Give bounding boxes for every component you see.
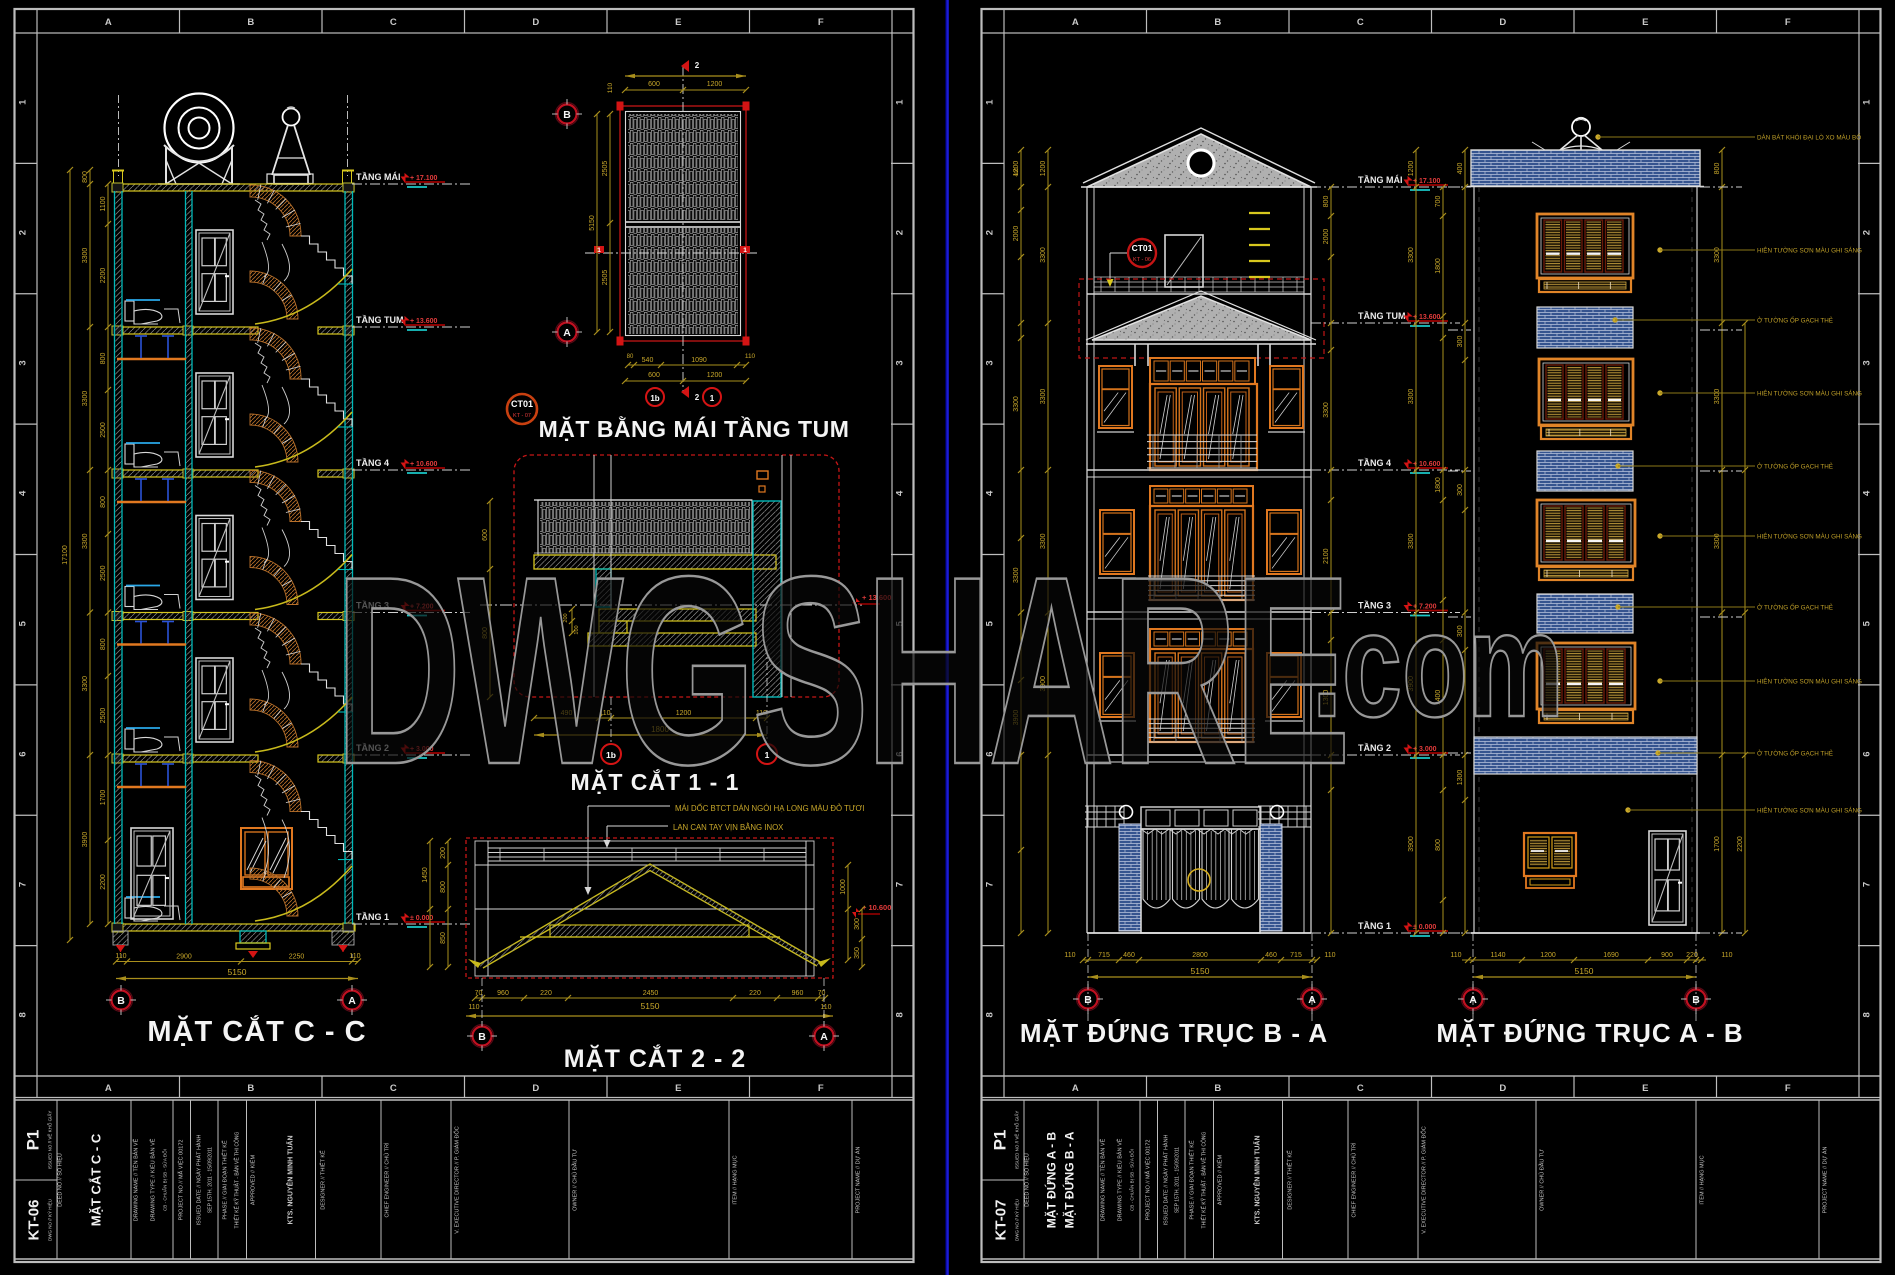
svg-text:PHASE // GIAI ĐOẠN THIẾT KẾ: PHASE // GIAI ĐOẠN THIẾT KẾ — [1189, 1140, 1196, 1220]
svg-text:5150: 5150 — [589, 215, 596, 231]
svg-text:3300: 3300 — [1323, 402, 1330, 418]
svg-text:+ 10.600: + 10.600 — [1413, 461, 1441, 468]
svg-text:F: F — [818, 1083, 824, 1094]
svg-text:A: A — [348, 995, 356, 1007]
svg-text:2: 2 — [695, 393, 700, 402]
svg-text:960: 960 — [792, 990, 804, 997]
svg-text:KT - 07: KT - 07 — [513, 413, 531, 419]
svg-text:DESIGNER // THIẾT KẾ: DESIGNER // THIẾT KẾ — [320, 1150, 327, 1210]
svg-text:B: B — [1214, 1083, 1221, 1094]
svg-text:TẦNG 1: TẦNG 1 — [1358, 921, 1391, 931]
svg-text:3900: 3900 — [1408, 836, 1415, 852]
svg-text:B: B — [563, 109, 571, 121]
svg-text:.com: .com — [1312, 581, 1564, 749]
svg-text:P1: P1 — [991, 1130, 1010, 1151]
svg-text:HIÊN TƯỜNG SƠN MÀU GHI SÁNG: HIÊN TƯỜNG SƠN MÀU GHI SÁNG — [1757, 388, 1862, 397]
svg-text:TẦNG TUM: TẦNG TUM — [1358, 311, 1406, 321]
svg-text:E: E — [675, 17, 681, 28]
svg-text:17100: 17100 — [62, 545, 69, 565]
svg-text:ISSUED NO // VẼ KHỔ GIẤY: ISSUED NO // VẼ KHỔ GIẤY — [47, 1111, 53, 1170]
svg-text:2505: 2505 — [602, 161, 609, 177]
svg-text:TẦNG 4: TẦNG 4 — [1358, 458, 1391, 468]
svg-text:A: A — [1072, 17, 1079, 28]
svg-text:300: 300 — [1457, 484, 1464, 496]
svg-text:1: 1 — [1862, 99, 1873, 105]
svg-text:3300: 3300 — [82, 391, 89, 407]
svg-text:PROJECT NO // MÃ VIỆC 001: PROJECT NO // MÃ VIỆC 00172 — [1144, 1140, 1152, 1221]
svg-text:2500: 2500 — [100, 708, 107, 724]
svg-text:A: A — [1469, 994, 1477, 1006]
svg-text:DRAWING NAME // TÊN BẢN VẼ: DRAWING NAME // TÊN BẢN VẼ — [132, 1138, 140, 1221]
svg-text:MẶT BẰNG MÁI TẦNG TUM: MẶT BẰNG MÁI TẦNG TUM — [539, 415, 850, 442]
svg-text:2: 2 — [18, 230, 29, 235]
svg-text:8: 8 — [1862, 1012, 1873, 1017]
svg-text:CT01: CT01 — [1132, 243, 1153, 253]
svg-text:ITEM // HẠNG MỤC: ITEM // HẠNG MỤC — [733, 1155, 739, 1204]
svg-text:2200: 2200 — [1737, 836, 1744, 852]
svg-text:1200: 1200 — [707, 372, 723, 379]
svg-text:D: D — [532, 17, 539, 28]
svg-text:70: 70 — [475, 990, 483, 997]
svg-text:400: 400 — [1457, 163, 1464, 175]
svg-text:540: 540 — [642, 357, 654, 364]
svg-text:2: 2 — [1862, 230, 1873, 235]
svg-text:TẦNG MÁI: TẦNG MÁI — [356, 172, 401, 182]
svg-text:ITEM // HẠNG MỤC: ITEM // HẠNG MỤC — [1700, 1155, 1706, 1204]
svg-text:B: B — [247, 17, 254, 28]
svg-text:5150: 5150 — [641, 1001, 660, 1011]
svg-text:1700: 1700 — [1714, 836, 1721, 852]
svg-text:+ 17.100: + 17.100 — [410, 175, 438, 182]
svg-text:3300: 3300 — [82, 533, 89, 549]
svg-text:1: 1 — [743, 247, 747, 254]
svg-text:A: A — [1072, 1083, 1079, 1094]
svg-text:7: 7 — [895, 882, 906, 887]
svg-text:600: 600 — [648, 372, 660, 379]
svg-text:MẶT ĐỨNG TRỤC A - B: MẶT ĐỨNG TRỤC A - B — [1436, 1018, 1743, 1048]
svg-text:4: 4 — [895, 490, 906, 496]
svg-text:110: 110 — [745, 353, 756, 360]
svg-text:+ 13.600: + 13.600 — [1413, 314, 1441, 321]
svg-text:1450: 1450 — [422, 867, 429, 883]
svg-text:TẦNG 4: TẦNG 4 — [356, 458, 389, 468]
svg-text:DWG NO // KÝ HIỆU: DWG NO // KÝ HIỆU — [1013, 1199, 1020, 1241]
svg-text:3300: 3300 — [82, 248, 89, 264]
svg-text:110: 110 — [1064, 952, 1075, 959]
svg-text:HIÊN TƯỜNG SƠN MÀU GHI SÁNG: HIÊN TƯỜNG SƠN MÀU GHI SÁNG — [1757, 531, 1862, 540]
svg-text:7: 7 — [18, 882, 29, 887]
svg-text:7: 7 — [1862, 882, 1873, 887]
svg-text:2450: 2450 — [643, 990, 659, 997]
svg-text:300: 300 — [854, 918, 861, 930]
svg-text:2: 2 — [695, 61, 700, 70]
svg-text:B: B — [1214, 17, 1221, 28]
svg-text:7: 7 — [985, 882, 996, 887]
svg-text:SEP 15TH, 2011 - 15/09/2011: SEP 15TH, 2011 - 15/09/2011 — [208, 1147, 214, 1213]
svg-text:3300: 3300 — [1408, 533, 1415, 549]
svg-text:+ 10.600: + 10.600 — [862, 903, 891, 912]
svg-text:B: B — [247, 1083, 254, 1094]
svg-text:E: E — [1642, 1083, 1648, 1094]
svg-text:THIẾT KẾ KỸ THUẬT - BẢN VẼ THI: THIẾT KẾ KỸ THUẬT - BẢN VẼ THI CÔNG — [234, 1131, 241, 1228]
svg-text:B: B — [1084, 994, 1092, 1006]
svg-text:5150: 5150 — [1191, 966, 1210, 976]
svg-text:2500: 2500 — [100, 565, 107, 581]
svg-text:B: B — [1692, 994, 1700, 1006]
svg-text:1090: 1090 — [691, 357, 707, 364]
svg-text:3300: 3300 — [1408, 389, 1415, 405]
svg-text:2800: 2800 — [1192, 952, 1208, 959]
svg-text:A: A — [105, 1083, 112, 1094]
svg-text:D: D — [1499, 1083, 1506, 1094]
svg-text:HIÊN TƯỜNG SƠN MÀU GHI SÁNG: HIÊN TƯỜNG SƠN MÀU GHI SÁNG — [1757, 245, 1862, 254]
svg-text:CHIEF ENGINEER // CHỦ TRÌ: CHIEF ENGINEER // CHỦ TRÌ — [384, 1142, 391, 1218]
svg-text:110: 110 — [1721, 952, 1732, 959]
svg-text:5: 5 — [18, 620, 29, 626]
svg-text:8: 8 — [985, 1012, 996, 1017]
svg-text:220: 220 — [540, 990, 552, 997]
svg-text:1200: 1200 — [1408, 161, 1415, 177]
svg-text:TẦNG 1: TẦNG 1 — [356, 912, 389, 922]
svg-text:1000: 1000 — [840, 879, 847, 895]
svg-text:± 0.000: ± 0.000 — [1413, 924, 1436, 931]
svg-text:1: 1 — [18, 99, 29, 105]
svg-text:2250: 2250 — [289, 954, 305, 961]
svg-text:TẦNG TUM: TẦNG TUM — [356, 315, 404, 325]
svg-text:LAN CAN TAY VỊN BẰNG INOX: LAN CAN TAY VỊN BẰNG INOX — [673, 823, 784, 832]
svg-text:1690: 1690 — [1603, 952, 1619, 959]
svg-text:800: 800 — [100, 496, 107, 508]
svg-text:460: 460 — [1265, 952, 1277, 959]
svg-text:2000: 2000 — [1013, 226, 1020, 242]
svg-text:OWNER // CHỦ ĐẦU TƯ: OWNER // CHỦ ĐẦU TƯ — [572, 1149, 579, 1211]
svg-text:460: 460 — [1123, 952, 1135, 959]
svg-text:3300: 3300 — [1040, 247, 1047, 263]
svg-text:220: 220 — [749, 990, 761, 997]
svg-text:SEP 15TH, 2011 - 15/09/2011: SEP 15TH, 2011 - 15/09/2011 — [1175, 1147, 1181, 1213]
svg-text:850: 850 — [440, 932, 447, 944]
svg-text:1140: 1140 — [1490, 952, 1505, 959]
svg-text:ISSUED NO // VẼ KHỔ GIẤY: ISSUED NO // VẼ KHỔ GIẤY — [1014, 1111, 1020, 1170]
svg-text:C: C — [1357, 1083, 1364, 1094]
svg-text:D: D — [1499, 17, 1506, 28]
svg-text:2: 2 — [985, 230, 996, 235]
svg-text:3: 3 — [1862, 360, 1873, 365]
svg-text:F: F — [1785, 17, 1791, 28]
svg-text:8: 8 — [895, 1012, 906, 1017]
svg-text:800: 800 — [1323, 196, 1330, 208]
svg-text:1100: 1100 — [100, 196, 107, 211]
svg-text:TẦNG MÁI: TẦNG MÁI — [1358, 175, 1403, 185]
svg-text:1800: 1800 — [1435, 477, 1442, 493]
svg-text:4: 4 — [1862, 490, 1873, 496]
svg-text:3300: 3300 — [1040, 389, 1047, 405]
svg-text:800: 800 — [1435, 839, 1442, 851]
svg-text:2900: 2900 — [176, 954, 192, 961]
svg-text:KT - 06: KT - 06 — [1133, 257, 1151, 263]
svg-text:2500: 2500 — [100, 422, 107, 438]
svg-text:C: C — [390, 1083, 397, 1094]
svg-text:3: 3 — [18, 360, 29, 365]
svg-text:MẶT ĐỨNG A - B: MẶT ĐỨNG A - B — [1044, 1131, 1059, 1228]
svg-text:MẶT CẮT C - C: MẶT CẮT C - C — [89, 1133, 104, 1226]
svg-text:DEED NO // SỐ HIỆU: DEED NO // SỐ HIỆU — [1023, 1153, 1031, 1207]
svg-text:B: B — [117, 995, 125, 1007]
svg-text:DWG NO // KÝ HIỆU: DWG NO // KÝ HIỆU — [46, 1199, 53, 1241]
svg-text:3900: 3900 — [82, 832, 89, 848]
svg-text:800: 800 — [1714, 163, 1721, 175]
svg-text:+ 13.600: + 13.600 — [410, 318, 438, 325]
svg-text:MẶT ĐỨNG TRỤC B - A: MẶT ĐỨNG TRỤC B - A — [1020, 1018, 1328, 1048]
svg-text:2200: 2200 — [100, 268, 107, 284]
svg-text:2000: 2000 — [1323, 229, 1330, 245]
svg-text:+ 10.600: + 10.600 — [410, 461, 438, 468]
svg-text:A: A — [1308, 994, 1316, 1006]
svg-text:CB - CHUẨN BỊ SB - SỬA ĐỔI: CB - CHUẨN BỊ SB - SỬA ĐỔI — [162, 1149, 168, 1211]
svg-text:C: C — [1357, 17, 1364, 28]
svg-text:600: 600 — [648, 81, 660, 88]
svg-text:DWGSHARE: DWGSHARE — [335, 522, 1347, 821]
svg-text:110: 110 — [1324, 952, 1335, 959]
svg-text:3300: 3300 — [1714, 389, 1721, 405]
svg-text:DRAWING TYPE // KIỂU BẢN VẼ: DRAWING TYPE // KIỂU BẢN VẼ — [150, 1138, 157, 1221]
svg-text:2505: 2505 — [602, 270, 609, 286]
svg-text:715: 715 — [1098, 952, 1110, 959]
svg-text:1: 1 — [895, 99, 906, 105]
svg-text:350: 350 — [854, 947, 861, 959]
svg-text:800: 800 — [440, 881, 447, 893]
svg-text:1300: 1300 — [1457, 770, 1464, 786]
svg-text:PROJECT NO // MÃ VIỆC 001: PROJECT NO // MÃ VIỆC 00172 — [177, 1140, 185, 1221]
svg-text:1700: 1700 — [100, 790, 107, 806]
svg-text:715: 715 — [1290, 952, 1302, 959]
svg-text:8: 8 — [18, 1012, 29, 1017]
svg-text:KT-06: KT-06 — [26, 1200, 43, 1241]
svg-text:1: 1 — [710, 394, 715, 403]
svg-text:3300: 3300 — [1714, 247, 1721, 263]
svg-text:B: B — [478, 1031, 486, 1043]
svg-text:APPROVED // KIỂM: APPROVED // KIỂM — [1217, 1155, 1224, 1206]
svg-text:300: 300 — [1457, 336, 1464, 348]
svg-text:PROJECT NAME // DỰ ÁN: PROJECT NAME // DỰ ÁN — [855, 1147, 862, 1214]
svg-text:ISSUED DATE // NGÀY PHÁT HÀNH: ISSUED DATE // NGÀY PHÁT HÀNH — [1163, 1134, 1170, 1225]
svg-text:2: 2 — [895, 230, 906, 235]
svg-text:1200: 1200 — [1540, 952, 1556, 959]
svg-text:6: 6 — [18, 751, 29, 756]
svg-text:HIÊN TƯỜNG SƠN MÀU GHI SÁNG: HIÊN TƯỜNG SƠN MÀU GHI SÁNG — [1757, 805, 1862, 814]
svg-text:V. EXECUTIVE DIRECTOR // P. GI: V. EXECUTIVE DIRECTOR // P. GIÁM ĐỐC — [454, 1126, 461, 1234]
svg-text:ISSUED DATE // NGÀY PHÁT HÀNH: ISSUED DATE // NGÀY PHÁT HÀNH — [196, 1134, 203, 1225]
svg-text:80: 80 — [627, 354, 634, 360]
svg-text:110: 110 — [349, 953, 360, 960]
svg-text:3300: 3300 — [1013, 396, 1020, 412]
svg-text:110: 110 — [115, 953, 126, 960]
svg-text:6: 6 — [1862, 751, 1873, 756]
svg-text:110: 110 — [468, 1004, 479, 1011]
svg-text:1: 1 — [597, 247, 601, 254]
svg-text:APPROVED // KIỂM: APPROVED // KIỂM — [250, 1155, 257, 1206]
svg-text:KT-07: KT-07 — [993, 1200, 1010, 1241]
svg-text:200: 200 — [440, 847, 447, 859]
svg-text:4: 4 — [985, 490, 996, 496]
svg-text:1b: 1b — [650, 394, 659, 403]
svg-text:1200: 1200 — [707, 81, 723, 88]
svg-text:THIẾT KẾ KỸ THUẬT - BẢN VẼ THI: THIẾT KẾ KỸ THUẬT - BẢN VẼ THI CÔNG — [1201, 1131, 1208, 1228]
svg-text:2200: 2200 — [100, 874, 107, 890]
svg-text:DESIGNER // THIẾT KẾ: DESIGNER // THIẾT KẾ — [1287, 1150, 1294, 1210]
svg-text:A: A — [105, 17, 112, 28]
svg-text:960: 960 — [497, 990, 509, 997]
svg-text:1: 1 — [985, 99, 996, 105]
svg-text:4: 4 — [18, 490, 29, 496]
svg-text:F: F — [818, 17, 824, 28]
svg-text:PROJECT NAME // DỰ ÁN: PROJECT NAME // DỰ ÁN — [1822, 1147, 1829, 1214]
svg-text:PHASE // GIAI ĐOẠN THIẾT KẾ: PHASE // GIAI ĐOẠN THIẾT KẾ — [222, 1140, 229, 1220]
svg-text:CHIEF ENGINEER // CHỦ TRÌ: CHIEF ENGINEER // CHỦ TRÌ — [1351, 1142, 1358, 1218]
svg-text:1800: 1800 — [1435, 258, 1442, 274]
svg-text:220: 220 — [1686, 952, 1698, 959]
svg-text:DRAWING TYPE // KIỂU BẢN VẼ: DRAWING TYPE // KIỂU BẢN VẼ — [1117, 1138, 1124, 1221]
svg-text:F: F — [1785, 1083, 1791, 1094]
svg-text:HIÊN TƯỜNG SƠN MÀU GHI SÁNG: HIÊN TƯỜNG SƠN MÀU GHI SÁNG — [1757, 676, 1862, 685]
svg-text:800: 800 — [100, 638, 107, 650]
svg-text:3: 3 — [895, 360, 906, 365]
svg-text:D: D — [532, 1083, 539, 1094]
svg-text:400: 400 — [1014, 167, 1020, 176]
svg-text:5150: 5150 — [228, 967, 247, 977]
svg-text:5150: 5150 — [1575, 966, 1594, 976]
svg-text:A: A — [820, 1031, 828, 1043]
svg-text:V. EXECUTIVE DIRECTOR // P. GI: V. EXECUTIVE DIRECTOR // P. GIÁM ĐỐC — [1421, 1126, 1428, 1234]
svg-text:P1: P1 — [24, 1130, 43, 1151]
svg-text:3300: 3300 — [1408, 247, 1415, 263]
svg-text:DEED NO // SỐ HIỆU: DEED NO // SỐ HIỆU — [56, 1153, 64, 1207]
svg-text:MẶT ĐỨNG B - A: MẶT ĐỨNG B - A — [1062, 1131, 1077, 1228]
svg-text:5: 5 — [1862, 620, 1873, 626]
svg-text:110: 110 — [820, 1004, 831, 1011]
svg-text:800: 800 — [82, 171, 89, 183]
svg-text:OWNER // CHỦ ĐẦU TƯ: OWNER // CHỦ ĐẦU TƯ — [1539, 1149, 1546, 1211]
svg-text:900: 900 — [1661, 952, 1673, 959]
svg-text:3300: 3300 — [82, 676, 89, 692]
svg-text:700: 700 — [1435, 196, 1442, 208]
svg-text:A: A — [563, 327, 571, 339]
svg-text:3: 3 — [985, 360, 996, 365]
svg-text:E: E — [1642, 17, 1648, 28]
svg-text:800: 800 — [100, 353, 107, 365]
svg-text:MẶT CẮT 2 - 2: MẶT CẮT 2 - 2 — [564, 1043, 746, 1073]
svg-text:E: E — [675, 1083, 681, 1094]
svg-text:CT01: CT01 — [511, 399, 533, 409]
svg-text:MẶT CẮT C - C: MẶT CẮT C - C — [147, 1014, 366, 1048]
svg-text:CB - CHUẨN BỊ SB - SỬA ĐỔI: CB - CHUẨN BỊ SB - SỬA ĐỔI — [1129, 1149, 1135, 1211]
svg-text:110: 110 — [607, 82, 614, 93]
svg-text:1200: 1200 — [1040, 161, 1047, 177]
svg-text:+ 17.100: + 17.100 — [1413, 178, 1441, 185]
svg-text:DRAWING NAME // TÊN BẢN VẼ: DRAWING NAME // TÊN BẢN VẼ — [1099, 1138, 1107, 1221]
svg-text:110: 110 — [1450, 952, 1461, 959]
svg-text:C: C — [390, 17, 397, 28]
